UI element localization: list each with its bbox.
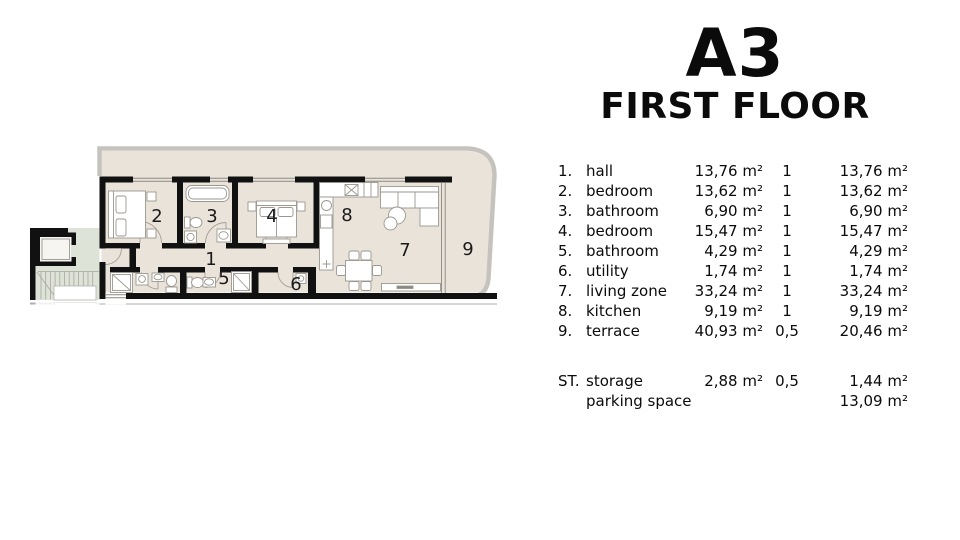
room-area: 40,93 m² [683,321,763,341]
row-number: 1. [558,161,586,181]
weighted-area: 13,62 m² [811,181,908,201]
room-name: bathroom [586,241,683,261]
weighted-area: 4,29 m² [811,241,908,261]
table-row: 6. utility 1,74 m² 1 1,74 m² [558,261,910,281]
area-coefficient: 0,5 [763,321,811,341]
room-area: 13,76 m² [683,161,763,181]
room-name: bedroom [586,181,683,201]
room-name: parking space [586,391,683,411]
row-number: 5. [558,241,586,261]
floor-plan-reflection [30,303,497,455]
row-number: 6. [558,261,586,281]
title-block: A3 FIRST FLOOR [545,20,925,126]
area-coefficient: 1 [763,261,811,281]
area-coefficient: 1 [763,221,811,241]
row-number: 4. [558,221,586,241]
weighted-area: 1,74 m² [811,261,908,281]
weighted-area: 15,47 m² [811,221,908,241]
area-coefficient: 1 [763,181,811,201]
room-area: 15,47 m² [683,221,763,241]
room-area: 1,74 m² [683,261,763,281]
parking-row: parking space 13,09 m² [558,391,910,411]
room-label-bedroom-2: 2 [151,206,162,227]
room-area: 6,90 m² [683,201,763,221]
table-row: 2. bedroom 13,62 m² 1 13,62 m² [558,181,910,201]
row-number [558,391,586,411]
room-area: 9,19 m² [683,301,763,321]
room-area: 13,62 m² [683,181,763,201]
area-coefficient: 1 [763,301,811,321]
area-coefficient: 1 [763,201,811,221]
room-name: bedroom [586,221,683,241]
room-name: hall [586,161,683,181]
table-row: 7. living zone 33,24 m² 1 33,24 m² [558,281,910,301]
floor-name: FIRST FLOOR [545,88,925,126]
room-name: living zone [586,281,683,301]
table-row: 4. bedroom 15,47 m² 1 15,47 m² [558,221,910,241]
table-row: 3. bathroom 6,90 m² 1 6,90 m² [558,201,910,221]
room-label-bedroom-4: 4 [266,206,277,227]
table-row: 9. terrace 40,93 m² 0,5 20,46 m² [558,321,910,341]
room-area: 4,29 m² [683,241,763,261]
table-row: 5. bathroom 4,29 m² 1 4,29 m² [558,241,910,261]
room-area [683,391,763,411]
row-number: 2. [558,181,586,201]
floor-plan-main [30,149,497,301]
room-label-utility-6: 6 [290,274,301,295]
table-row: 1. hall 13,76 m² 1 13,76 m² [558,161,910,181]
row-number: 9. [558,321,586,341]
unit-name: A3 [545,20,925,88]
storage-row: ST. storage 2,88 m² 0,5 1,44 m² [558,371,910,391]
area-coefficient: 0,5 [763,371,811,391]
row-number: 3. [558,201,586,221]
weighted-area: 20,46 m² [811,321,908,341]
weighted-area: 13,09 m² [811,391,908,411]
room-area: 33,24 m² [683,281,763,301]
area-coefficient: 1 [763,281,811,301]
room-name: storage [586,371,683,391]
room-label-kitchen-8: 8 [341,205,352,226]
row-number: 8. [558,301,586,321]
area-coefficient: 1 [763,241,811,261]
area-coefficient: 1 [763,161,811,181]
row-number: ST. [558,371,586,391]
room-name: terrace [586,321,683,341]
area-table: 1. hall 13,76 m² 1 13,76 m² 2. bedroom 1… [558,161,910,411]
weighted-area: 1,44 m² [811,371,908,391]
table-row: 8. kitchen 9,19 m² 1 9,19 m² [558,301,910,321]
room-label-living-7: 7 [399,240,410,261]
weighted-area: 6,90 m² [811,201,908,221]
room-name: kitchen [586,301,683,321]
area-coefficient [763,391,811,411]
room-name: utility [586,261,683,281]
room-area: 2,88 m² [683,371,763,391]
room-name: bathroom [586,201,683,221]
room-label-bathroom-5: 5 [218,268,229,289]
room-label-hall: 1 [205,249,216,270]
weighted-area: 33,24 m² [811,281,908,301]
room-label-bathroom-3: 3 [206,206,217,227]
weighted-area: 13,76 m² [811,161,908,181]
weighted-area: 9,19 m² [811,301,908,321]
row-number: 7. [558,281,586,301]
room-label-terrace-9: 9 [462,239,473,260]
page: 1 2 3 4 5 6 7 8 9 A3 FIRST FLOOR 1. hall… [0,0,960,540]
